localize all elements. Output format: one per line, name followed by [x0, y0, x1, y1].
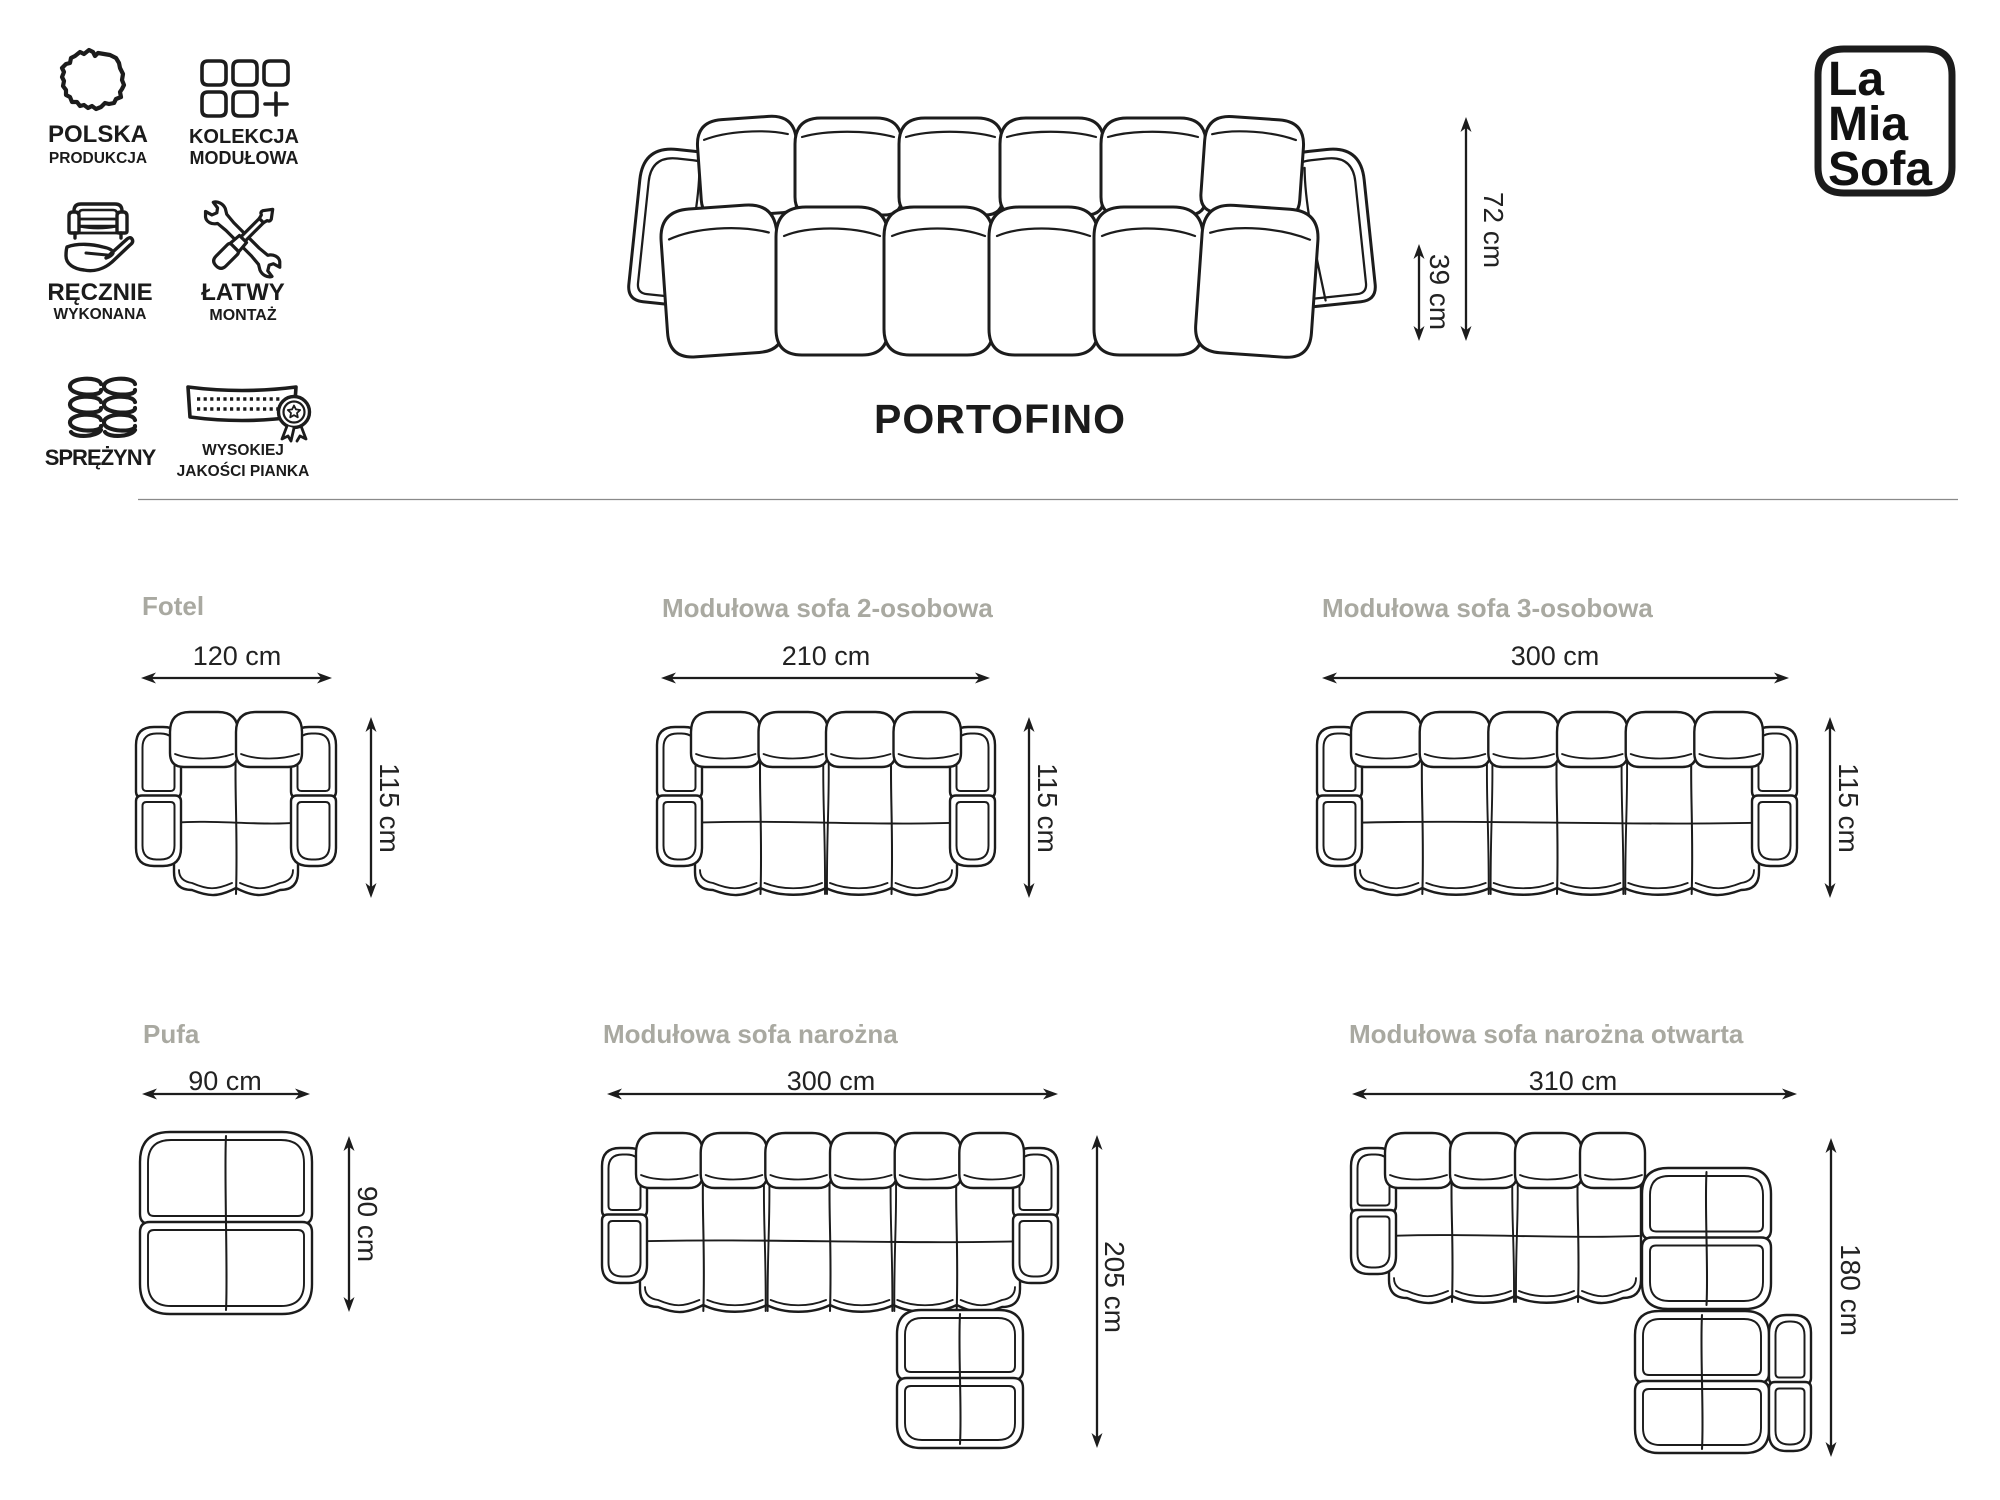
svg-text:PORTOFINO: PORTOFINO	[874, 396, 1126, 442]
svg-text:POLSKA: POLSKA	[48, 121, 148, 148]
svg-text:SPRĘŻYNY: SPRĘŻYNY	[45, 445, 157, 470]
svg-text:115 cm: 115 cm	[374, 763, 405, 853]
svg-text:120 cm: 120 cm	[193, 641, 282, 671]
svg-text:310 cm: 310 cm	[1529, 1066, 1618, 1096]
svg-text:300 cm: 300 cm	[1511, 641, 1600, 671]
svg-text:39 cm: 39 cm	[1424, 254, 1455, 330]
svg-text:MODUŁOWA: MODUŁOWA	[190, 148, 299, 168]
svg-text:WYKONANA: WYKONANA	[54, 306, 147, 323]
svg-text:RĘCZNIE: RĘCZNIE	[47, 279, 152, 306]
svg-text:72 cm: 72 cm	[1478, 192, 1509, 268]
svg-text:WYSOKIEJ: WYSOKIEJ	[202, 442, 284, 459]
svg-text:Modułowa sofa narożna otwarta: Modułowa sofa narożna otwarta	[1349, 1019, 1744, 1049]
svg-text:MONTAŻ: MONTAŻ	[209, 306, 276, 324]
svg-text:180 cm: 180 cm	[1835, 1244, 1866, 1336]
svg-text:205 cm: 205 cm	[1099, 1241, 1130, 1333]
svg-text:ŁATWY: ŁATWY	[201, 279, 285, 306]
svg-text:Modułowa sofa narożna: Modułowa sofa narożna	[603, 1019, 898, 1049]
svg-text:Modułowa sofa 3-osobowa: Modułowa sofa 3-osobowa	[1322, 593, 1653, 623]
svg-text:90 cm: 90 cm	[352, 1186, 383, 1262]
svg-text:Modułowa sofa 2-osobowa: Modułowa sofa 2-osobowa	[662, 593, 993, 623]
svg-text:JAKOŚCI PIANKA: JAKOŚCI PIANKA	[177, 462, 310, 480]
svg-text:KOLEKCJA: KOLEKCJA	[189, 126, 299, 148]
svg-text:300 cm: 300 cm	[787, 1066, 876, 1096]
svg-text:115 cm: 115 cm	[1833, 763, 1864, 853]
svg-text:Pufa: Pufa	[143, 1019, 200, 1049]
svg-text:Fotel: Fotel	[142, 591, 204, 621]
svg-text:210 cm: 210 cm	[782, 641, 871, 671]
svg-text:Sofa: Sofa	[1828, 143, 1932, 196]
svg-text:90 cm: 90 cm	[188, 1066, 262, 1096]
svg-text:PRODUKCJA: PRODUKCJA	[49, 150, 147, 167]
svg-text:115 cm: 115 cm	[1032, 763, 1063, 853]
